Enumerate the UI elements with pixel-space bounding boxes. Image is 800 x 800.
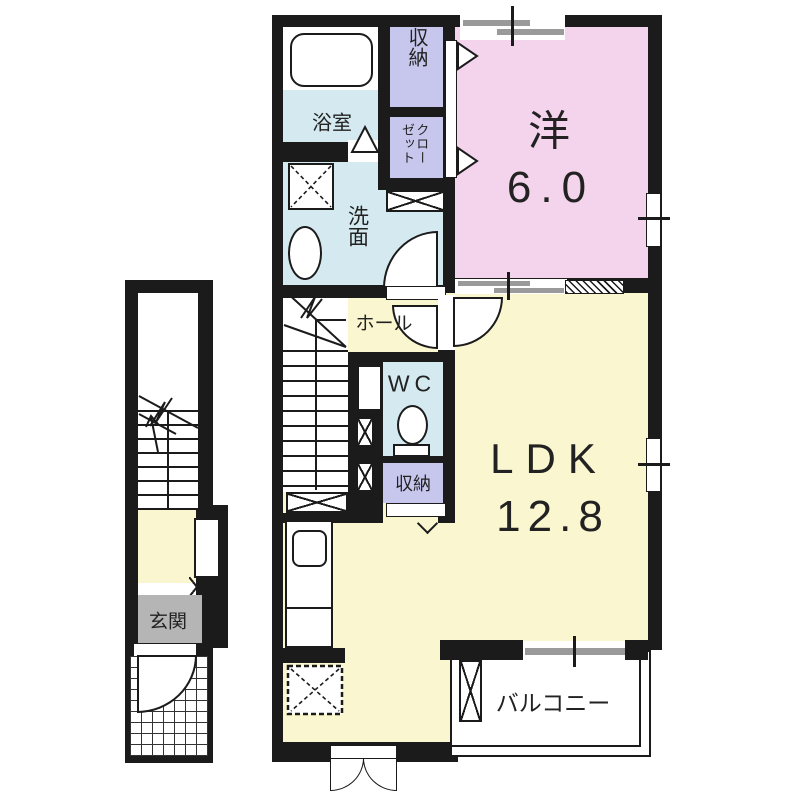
western-ldk-sliding-sash-2 — [494, 288, 564, 293]
bottom-door-arc-left — [330, 758, 364, 791]
label-wc: WC — [388, 371, 436, 398]
label-ldk-size: 12.8 — [496, 492, 610, 542]
western-ldk-sliding-tick — [507, 272, 510, 300]
wc-storage-divider — [383, 456, 443, 463]
kitchen-counter-divider — [286, 607, 332, 609]
annex-side-door — [194, 518, 220, 578]
hall-wc-wall — [383, 352, 443, 362]
floorplan-canvas: 浴室 収納 クローゼット 洗面 洋 6.0 ホール WC 収納 LDK 12.8… — [0, 0, 800, 800]
kitchen-bottom-wall — [283, 648, 345, 663]
bottom-door-arc-right — [363, 758, 397, 791]
bath-door-gap — [348, 140, 378, 162]
label-western-name: 洋 — [528, 98, 570, 159]
washbasin — [288, 226, 322, 280]
label-ldk-name: LDK — [490, 435, 608, 483]
western-right-window — [646, 193, 661, 247]
closet-bottom-wall — [378, 178, 443, 190]
annex-hall-sill — [138, 583, 196, 595]
storage-closet-divider — [390, 107, 443, 117]
water-heater-xbox — [459, 660, 482, 722]
label-storage-mid: 収納 — [395, 470, 431, 496]
balcony-window-tick — [573, 636, 576, 667]
label-entrance: 玄関 — [149, 607, 187, 634]
understair-storage-xbox — [286, 492, 348, 513]
annex-stairs-center-rail — [167, 410, 169, 510]
closet-door-panel — [445, 40, 457, 178]
kitchen-sink — [292, 530, 327, 567]
western-ldk-hatched-wall — [565, 280, 624, 294]
wc-door — [358, 366, 381, 410]
ldk-balcony-wall-right — [625, 640, 648, 660]
main-stairs-center-rail — [315, 320, 317, 490]
label-western-size: 6.0 — [507, 163, 595, 213]
label-balcony: バルコニー — [496, 684, 611, 718]
toilet-bowl — [397, 405, 428, 445]
ldk-right-window-tick — [638, 463, 670, 466]
western-top-window-sash-2 — [497, 29, 564, 35]
pipe-space-xbox-2 — [356, 462, 374, 492]
label-washroom: 洗面 — [345, 205, 368, 263]
pipe-space-xbox-1 — [356, 417, 374, 447]
label-bath: 浴室 — [312, 107, 352, 136]
bath-washroom-wall — [283, 142, 348, 162]
western-top-window-sash-1 — [463, 20, 530, 26]
western-ldk-sliding-sash-1 — [458, 281, 530, 286]
bathtub — [290, 33, 373, 87]
label-closet: クローゼット — [400, 123, 429, 171]
annex-upper-hall — [138, 510, 196, 583]
western-right-window-tick — [638, 217, 670, 220]
annex-vent-xmark — [189, 577, 205, 597]
washroom-door-sill — [386, 286, 446, 300]
storage-mid-door-sill — [386, 503, 446, 517]
ldk-balcony-wall-left — [440, 640, 523, 660]
linen-storage-xbox — [386, 190, 445, 212]
western-top-window-tick — [511, 6, 514, 46]
label-storage-top: 収納 — [405, 27, 427, 83]
label-hall: ホール — [355, 309, 412, 336]
